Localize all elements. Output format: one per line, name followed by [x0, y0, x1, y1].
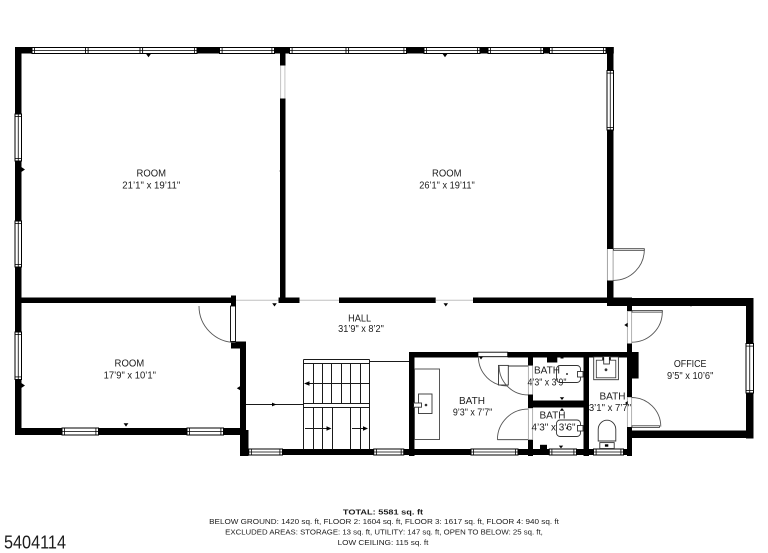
svg-text:BELOW GROUND: 1420 sq. ft, FLO: BELOW GROUND: 1420 sq. ft, FLOOR 2: 1604… [209, 517, 559, 526]
svg-text:BATH: BATH [600, 392, 626, 403]
svg-text:31’9" x 8’2": 31’9" x 8’2" [338, 324, 384, 335]
svg-text:5404114: 5404114 [4, 533, 66, 553]
svg-text:LOW CEILING: 115 sq. ft: LOW CEILING: 115 sq. ft [338, 538, 429, 547]
svg-text:EXCLUDED AREAS: STORAGE: 13 sq: EXCLUDED AREAS: STORAGE: 13 sq. ft, UTIL… [225, 527, 543, 536]
svg-text:BATH: BATH [540, 411, 566, 422]
svg-text:ROOM: ROOM [432, 169, 462, 180]
svg-text:3’1" x 7’7": 3’1" x 7’7" [589, 403, 632, 414]
svg-text:4’3" x 3’9": 4’3" x 3’9" [528, 377, 567, 388]
svg-text:TOTAL: 5581 sq. ft: TOTAL: 5581 sq. ft [343, 508, 424, 517]
svg-text:ROOM: ROOM [137, 169, 167, 180]
svg-text:4’3" x 3’6": 4’3" x 3’6" [532, 422, 577, 433]
svg-text:26’1" x 19’11": 26’1" x 19’11" [419, 180, 475, 191]
svg-text:17’9" x 10’1": 17’9" x 10’1" [104, 370, 157, 381]
svg-text:BATH: BATH [534, 366, 560, 377]
svg-text:21’1" x 19’11": 21’1" x 19’11" [122, 181, 180, 192]
svg-text:9’3" x 7’7": 9’3" x 7’7" [453, 407, 493, 418]
svg-text:ROOM: ROOM [115, 359, 145, 370]
svg-text:9’5" x 10’6": 9’5" x 10’6" [667, 371, 714, 382]
svg-text:OFFICE: OFFICE [674, 359, 707, 370]
svg-text:BATH: BATH [459, 396, 485, 407]
